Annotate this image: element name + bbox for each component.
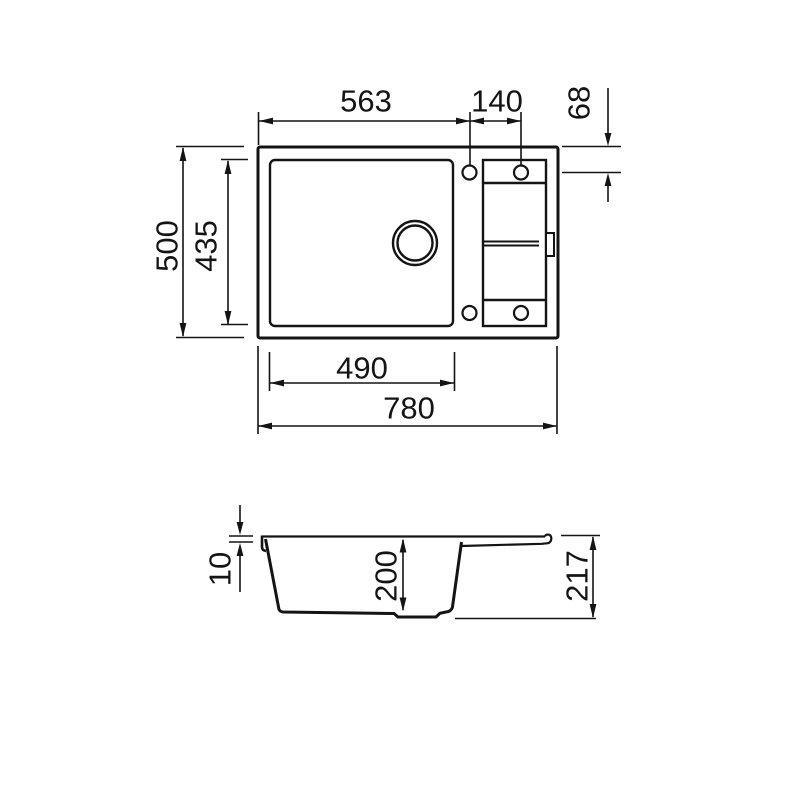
dim-10: 10 <box>203 505 254 592</box>
dim-217: 217 <box>560 536 601 619</box>
faucet-hole-bottom-right <box>514 306 528 320</box>
dim-563: 563 <box>259 84 471 146</box>
dim-label-490: 490 <box>336 351 388 386</box>
dim-200: 200 <box>369 539 407 612</box>
dim-label-217: 217 <box>560 550 595 602</box>
faucet-hole-bottom-left <box>463 306 477 320</box>
dim-label-10: 10 <box>203 552 238 586</box>
drain-outer-circle <box>393 221 437 265</box>
dim-label-68: 68 <box>562 86 597 120</box>
faucet-hole-top-right <box>514 166 528 180</box>
section-bowl-profile <box>266 539 462 617</box>
dim-140: 140 <box>470 84 523 125</box>
rim-clip <box>546 233 554 256</box>
sink-bowl <box>270 160 453 326</box>
section-view <box>262 535 596 619</box>
dim-label-200: 200 <box>369 550 404 602</box>
dim-490: 490 <box>270 351 455 392</box>
drain-inner-circle <box>398 226 433 261</box>
dim-label-500: 500 <box>150 220 185 272</box>
dim-label-435: 435 <box>189 220 224 272</box>
dim-label-563: 563 <box>340 84 392 119</box>
dim-label-140: 140 <box>471 84 523 119</box>
dim-label-780: 780 <box>383 391 435 426</box>
dim-68: 68 <box>562 86 622 202</box>
technical-drawing-page: 563 140 68 500 435 490 <box>0 0 800 800</box>
sink-technical-drawing: 563 140 68 500 435 490 <box>0 0 800 800</box>
faucet-hole-top-left <box>463 166 477 180</box>
dim-435: 435 <box>189 160 249 326</box>
dim-780: 780 <box>258 346 557 434</box>
top-view <box>258 112 558 338</box>
